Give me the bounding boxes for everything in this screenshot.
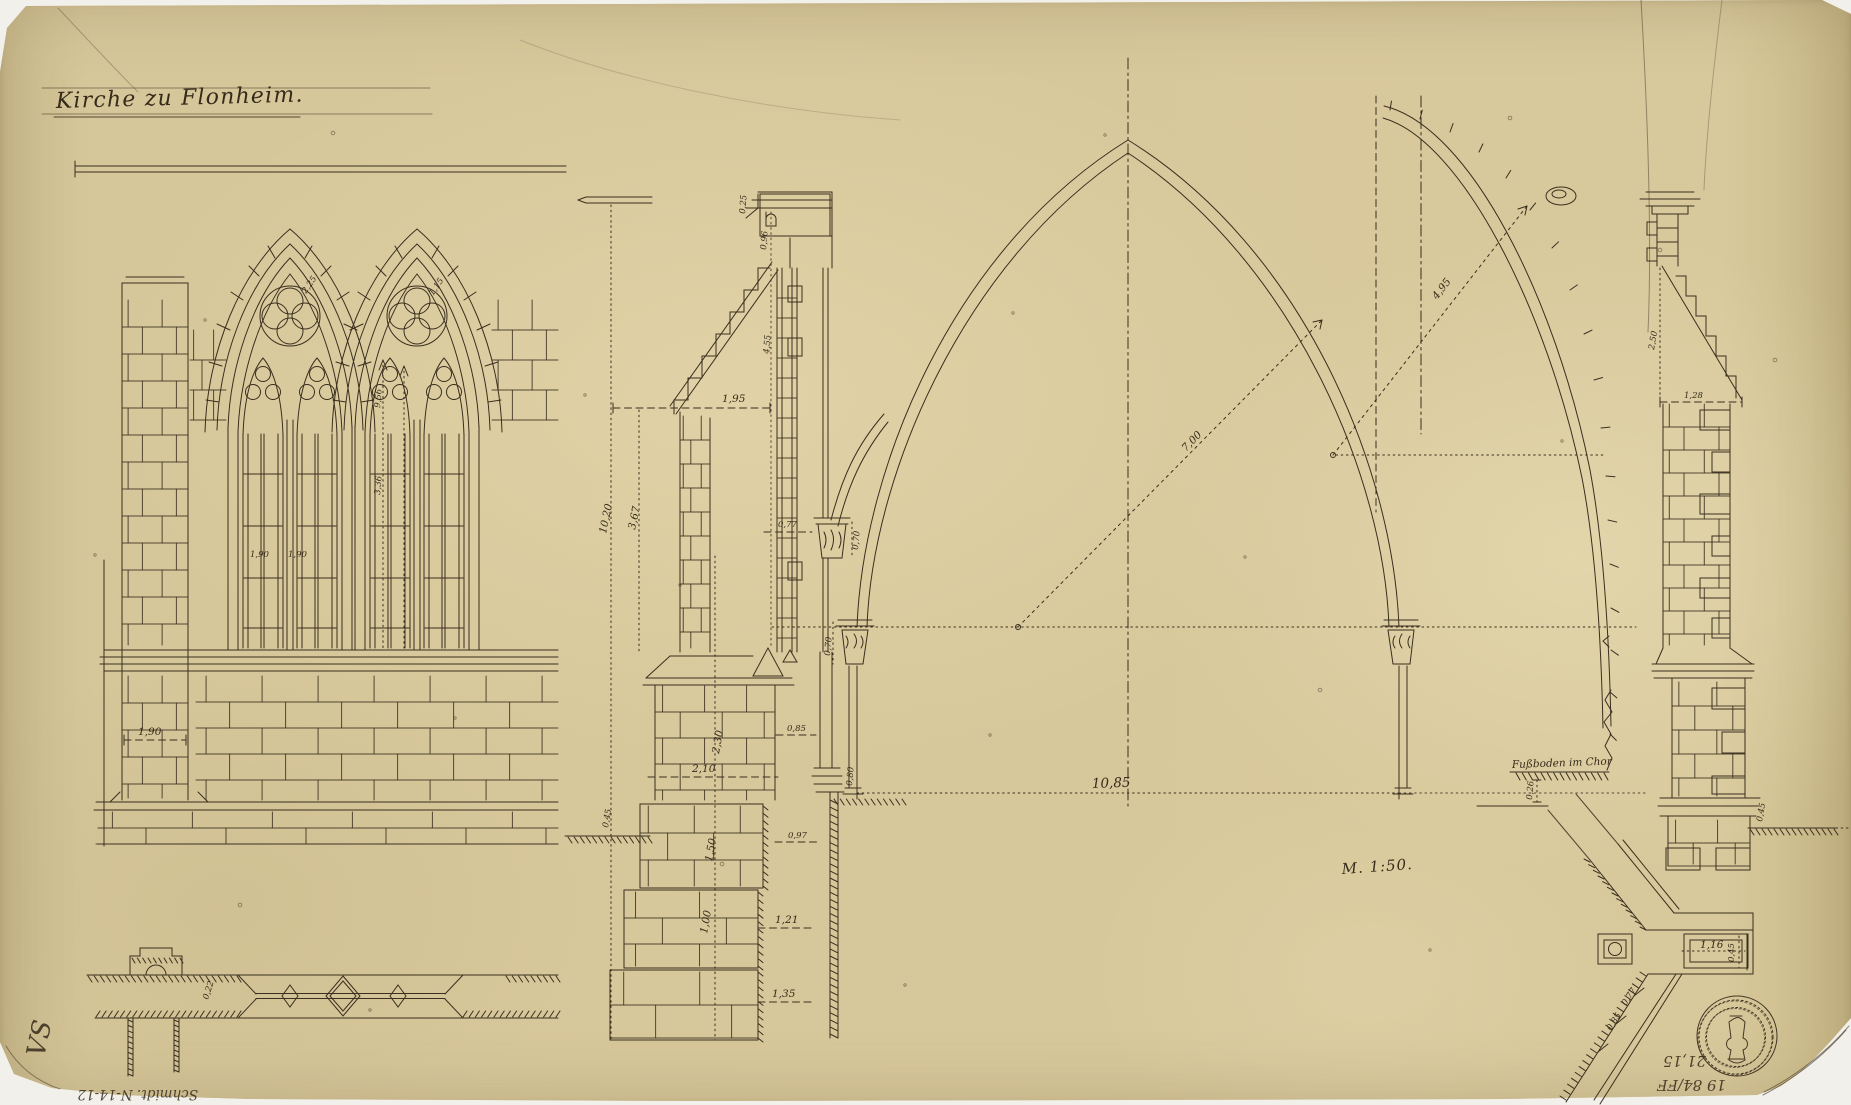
dim-mid-width: 2,10 — [691, 763, 716, 775]
earth-hatch — [830, 977, 838, 981]
earth-hatch — [830, 892, 838, 896]
hatch-tick — [174, 1035, 179, 1037]
ground-hatch — [840, 799, 844, 805]
earth-hatch — [830, 899, 838, 903]
hatch-tick — [763, 850, 768, 854]
dim-plinth-height: 0,80 — [845, 766, 857, 786]
dim-footing-height: 1,00 — [698, 909, 714, 934]
hatch-tick — [125, 976, 129, 982]
hatch-tick — [182, 1011, 186, 1017]
generated-masonry — [88, 101, 1838, 1100]
hatch-tick — [550, 1011, 554, 1017]
hatch-tick — [500, 1011, 504, 1017]
wall-cross-section: 1,95 0,25 0,96 4,55 10,20 3,67 0,77 0,70… — [565, 192, 888, 1040]
wall-hatch — [1579, 1066, 1585, 1070]
ground-hatch — [642, 837, 646, 843]
hatch-tick — [758, 907, 763, 911]
hatch-tick — [175, 976, 179, 982]
arc-hatch — [1506, 170, 1511, 178]
ground-hatch — [599, 837, 603, 843]
hatch-tick — [128, 1058, 133, 1060]
hatch-tick — [139, 1011, 143, 1017]
hatch-tick — [506, 976, 510, 982]
hatch-tick — [763, 879, 768, 883]
ground-hatch — [871, 799, 875, 805]
ground-hatch — [1804, 829, 1808, 835]
hatch-tick — [758, 892, 763, 896]
hatch-tick — [170, 1011, 174, 1017]
arc-hatch — [1611, 608, 1619, 612]
earth-hatch — [830, 949, 838, 953]
hatch-tick — [550, 976, 554, 982]
ruled-lines — [75, 161, 566, 177]
hatch-tick — [128, 1047, 133, 1049]
paper-speckle — [369, 1009, 371, 1011]
earth-hatch — [830, 1013, 838, 1017]
arc-hatch — [1584, 330, 1592, 334]
earth-hatch — [830, 807, 838, 811]
hatch-tick — [758, 914, 763, 918]
hatch-tick — [94, 976, 98, 982]
wall-hatch — [1617, 1007, 1623, 1011]
dim-cornice-lip: 0,25 — [738, 195, 750, 215]
hatch-tick — [137, 958, 140, 963]
hatch-tick — [174, 1055, 179, 1057]
hatch-tick — [145, 1011, 149, 1017]
hatch-tick — [174, 1030, 179, 1032]
dim-ground-depth: 0,45 — [601, 808, 614, 828]
ground-hatch — [1822, 829, 1826, 835]
window-elevation: 1,90 1,90 1,90 2,25 1,15 9,56 3,36 — [94, 229, 558, 846]
hatch-tick — [128, 1031, 133, 1033]
dim-window-height: 4,55 — [762, 335, 774, 356]
ground-hatch — [902, 799, 906, 805]
hatch-tick — [169, 976, 173, 982]
hatch-tick — [148, 958, 151, 963]
title-block: Kirche zu Flonheim. — [42, 83, 432, 117]
earth-hatch — [830, 835, 838, 839]
ground-hatch — [877, 799, 881, 805]
hatch-tick — [157, 1011, 161, 1017]
hatch-tick — [758, 966, 763, 970]
earth-hatch — [830, 935, 838, 939]
hatch-tick — [156, 976, 160, 982]
ground-hatch — [630, 837, 634, 843]
arc-hatch — [1552, 242, 1559, 248]
hatch-tick — [219, 1011, 223, 1017]
dim-weathering-width: 1,28 — [1684, 391, 1704, 401]
hatch-tick — [88, 976, 92, 982]
wall-hatch — [1560, 1096, 1566, 1100]
hatch-tick — [107, 976, 111, 982]
hatch-tick — [144, 976, 148, 982]
hatch-tick — [128, 1025, 133, 1027]
hatch-tick — [175, 958, 178, 963]
hatch-tick — [758, 899, 763, 903]
dim-shaft-lower: 3,36 — [373, 475, 385, 495]
hatch-tick — [758, 1016, 763, 1020]
hatch-tick — [231, 976, 235, 982]
ground-hatch — [617, 837, 621, 843]
hatch-tick — [519, 976, 523, 982]
hatch-tick — [133, 1011, 137, 1017]
sheet-title: Kirche zu Flonheim. — [55, 83, 304, 115]
hatch-tick — [206, 1011, 210, 1017]
hatch-tick — [758, 929, 763, 933]
wall-hatch — [1571, 1078, 1577, 1082]
hatch-tick — [225, 976, 229, 982]
paper-speckle — [454, 717, 456, 719]
dim-mid-height: 2,30 — [710, 729, 726, 755]
hatch-tick — [763, 828, 768, 832]
hatch-tick — [758, 1009, 763, 1013]
dim-wall-b: 0,85 — [1605, 1011, 1624, 1032]
hatch-tick — [537, 1011, 541, 1017]
hatch-tick — [463, 1011, 467, 1017]
earth-hatch — [830, 864, 838, 868]
gothic-window-right — [332, 229, 502, 650]
wall-hatch — [1568, 1084, 1574, 1088]
dim-light-left: 1,90 — [250, 550, 270, 560]
dim-total-height: 10,20 — [597, 502, 615, 534]
hatch-tick — [188, 1011, 192, 1017]
scanned-architectural-drawing: Kirche zu Flonheim. 1,90 — [0, 0, 1851, 1105]
hatch-tick — [482, 1011, 486, 1017]
ground-hatch — [1786, 829, 1790, 835]
hatch-tick — [212, 1011, 216, 1017]
earth-hatch — [830, 963, 838, 967]
earth-hatch — [830, 928, 838, 932]
ground-hatch — [648, 837, 652, 843]
earth-hatch — [830, 913, 838, 917]
hatch-tick — [758, 1038, 763, 1042]
dim-jamb-width: 0,77 — [778, 520, 798, 530]
ground-hatch — [636, 837, 640, 843]
hatch-tick — [475, 1011, 479, 1017]
paper-speckle — [1318, 688, 1322, 692]
nave-arch: 7,00 4,95 0,70 10,85 M. 1:50. — [772, 58, 1648, 878]
floor-label: Fußboden im Chor — [1511, 755, 1613, 771]
hatch-tick — [758, 922, 763, 926]
choir-corner-plan: 1,16 0,45 0,77 0,85 — [1548, 794, 1753, 1104]
gothic-window-left — [205, 229, 375, 650]
hatch-tick — [121, 1011, 125, 1017]
choir-arch-segment: Fußboden im Chor 0,26 — [1376, 96, 1613, 806]
hatch-tick — [212, 976, 216, 982]
arc-hatch — [1608, 520, 1617, 522]
hatch-tick — [763, 835, 768, 839]
ground-hatch — [1756, 829, 1760, 835]
hatch-tick — [556, 976, 560, 982]
earth-hatch — [830, 800, 838, 804]
arc-hatch — [1450, 124, 1453, 132]
arc-hatch — [1601, 427, 1610, 428]
arc-hatch — [1611, 650, 1618, 655]
ground-hatch — [1780, 829, 1784, 835]
ground-hatch — [605, 837, 609, 843]
hatch-tick — [163, 976, 167, 982]
wall-hatch — [1587, 1055, 1593, 1059]
hatch-tick — [100, 976, 104, 982]
hatch-tick — [113, 976, 117, 982]
dim-arch-capital-height: 0,70 — [823, 636, 835, 656]
earth-hatch — [830, 1027, 838, 1031]
hatch-tick — [194, 976, 198, 982]
hatch-tick — [231, 1011, 235, 1017]
hatch-tick — [174, 1065, 179, 1067]
pencil-corner-mark: VS — [22, 1017, 59, 1059]
earth-hatch — [830, 970, 838, 974]
ground-hatch — [1828, 829, 1832, 835]
hatch-tick — [200, 976, 204, 982]
ground-hatch — [853, 799, 857, 805]
earth-hatch — [830, 1020, 838, 1024]
dim-recess-depth: 0,45 — [1727, 943, 1737, 962]
paper-speckle — [1012, 312, 1014, 314]
floor-hatch — [1604, 773, 1608, 780]
drawing-linework: Kirche zu Flonheim. 1,90 — [0, 0, 1851, 1105]
ground-hatch — [1774, 829, 1778, 835]
ground-hatch — [580, 837, 584, 843]
earth-hatch — [830, 999, 838, 1003]
earth-hatch — [830, 828, 838, 832]
wall-hatch — [1583, 1061, 1589, 1065]
arc-hatch — [1479, 144, 1483, 152]
hatch-tick — [763, 813, 768, 817]
earth-hatch — [830, 921, 838, 925]
hatch-tick — [128, 1036, 133, 1038]
earth-hatch — [830, 984, 838, 988]
ground-hatch — [586, 837, 590, 843]
hatch-tick — [174, 1060, 179, 1062]
window-plan: 0,22 — [87, 948, 558, 1076]
hatch-tick — [758, 944, 763, 948]
earth-hatch — [830, 857, 838, 861]
dim-radius-choir: 4,95 — [1429, 276, 1454, 303]
hatch-tick — [187, 976, 191, 982]
dim-floor-step: 0,26 — [1525, 780, 1537, 800]
ground-hatch — [1810, 829, 1814, 835]
dim-arch-tip-left: 2,25 — [300, 274, 320, 296]
ground-hatch — [593, 837, 597, 843]
arc-hatch — [1606, 476, 1615, 477]
dim-wall-a: 0,77 — [1620, 986, 1639, 1008]
hatch-tick — [127, 1011, 131, 1017]
hatch-tick — [763, 857, 768, 861]
ground-hatch — [890, 799, 894, 805]
hatch-tick — [763, 842, 768, 846]
embossed-seal — [1697, 996, 1777, 1076]
hatch-tick — [151, 1011, 155, 1017]
hatch-tick — [128, 1069, 133, 1071]
dim-plinth-depth: 0,45 — [1755, 802, 1768, 822]
hatch-tick — [556, 1011, 560, 1017]
wall-hatch — [1598, 1037, 1604, 1041]
earth-hatch — [830, 956, 838, 960]
hatch-tick — [174, 1040, 179, 1042]
floor-hatch — [1566, 773, 1570, 780]
hatch-tick — [128, 1074, 133, 1076]
ground-hatch — [1792, 829, 1796, 835]
hatch-tick — [176, 1011, 180, 1017]
hatch-tick — [159, 958, 162, 963]
hatch-tick — [150, 976, 154, 982]
floor-hatch — [1554, 773, 1558, 780]
paper-speckle — [204, 319, 206, 321]
hatch-tick — [525, 1011, 529, 1017]
ground-hatch — [568, 837, 572, 843]
hatch-tick — [96, 1011, 100, 1017]
arc-hatch — [1390, 101, 1391, 110]
dim-arch-span: 10,85 — [1092, 775, 1131, 792]
hatch-tick — [506, 1011, 510, 1017]
ground-hatch — [846, 799, 850, 805]
hatch-tick — [102, 1011, 106, 1017]
earth-hatch — [830, 885, 838, 889]
arc-hatch — [1610, 692, 1617, 698]
dim-frieze-height: 0,96 — [759, 230, 771, 250]
earth-hatch — [830, 878, 838, 882]
hatch-tick — [128, 1042, 133, 1044]
hatch-tick — [163, 1011, 167, 1017]
hatch-tick — [758, 951, 763, 955]
paper-speckle — [1561, 440, 1563, 442]
paper-speckle — [720, 862, 724, 866]
wall-hatch — [1564, 1090, 1570, 1094]
floor-hatch — [1535, 773, 1539, 780]
pencil-inventory-note: Schmidt. N-14-12 — [77, 1086, 198, 1102]
hatch-tick — [181, 976, 185, 982]
earth-hatch — [830, 991, 838, 995]
hatch-tick — [758, 972, 763, 976]
hatch-tick — [143, 958, 146, 963]
paper-speckle — [989, 734, 991, 736]
paper-speckle — [94, 554, 96, 556]
wall-hatch — [1594, 1043, 1600, 1047]
hatch-tick — [513, 1011, 517, 1017]
hatch-tick — [200, 1011, 204, 1017]
hatch-tick — [512, 976, 516, 982]
dim-weathering-height: 2,50 — [1647, 330, 1660, 352]
hatch-tick — [169, 958, 172, 963]
paper-speckle — [1244, 556, 1246, 558]
ground-hatch — [1798, 829, 1802, 835]
hatch-tick — [174, 1020, 179, 1022]
pencil-archive-line2: 21,15 — [1663, 1052, 1707, 1070]
hatch-tick — [128, 1020, 133, 1022]
earth-hatch — [830, 906, 838, 910]
paper-speckle — [331, 131, 335, 135]
floor-hatch — [1560, 773, 1564, 780]
paper-speckle — [584, 394, 586, 396]
arc-hatch — [1530, 203, 1536, 210]
paper-speckle — [1508, 116, 1512, 120]
hatch-tick — [531, 976, 535, 982]
wall-hatch — [1640, 972, 1646, 976]
floor-hatch — [1522, 773, 1526, 780]
hatch-tick — [132, 958, 135, 963]
wall-hatch — [1575, 1072, 1581, 1076]
hatch-tick — [164, 958, 167, 963]
ground-hatch — [611, 837, 615, 843]
earth-hatch — [830, 843, 838, 847]
floor-hatch — [1573, 773, 1577, 780]
floor-hatch — [1541, 773, 1545, 780]
hatch-tick — [544, 1011, 548, 1017]
hatch-tick — [525, 976, 529, 982]
paper-speckle — [904, 984, 906, 986]
earth-hatch — [830, 942, 838, 946]
floor-hatch — [1547, 773, 1551, 780]
hatch-tick — [131, 976, 135, 982]
hatch-tick — [758, 979, 763, 983]
hatch-tick — [194, 1011, 198, 1017]
ground-hatch — [574, 837, 578, 843]
earth-hatch — [830, 821, 838, 825]
ground-hatch — [896, 799, 900, 805]
paper-speckle — [1658, 248, 1662, 252]
paper-blemishes — [6, 0, 1849, 1095]
dim-footing-width: 1,21 — [775, 914, 798, 926]
paper-speckle — [238, 903, 242, 907]
hatch-tick — [153, 958, 156, 963]
floor-hatch — [1529, 773, 1533, 780]
earth-hatch — [830, 871, 838, 875]
hatch-tick — [174, 1070, 179, 1072]
ground-hatch — [1750, 829, 1754, 835]
hatch-tick — [138, 976, 142, 982]
dim-wall-width: 0,97 — [788, 831, 808, 841]
hatch-tick — [531, 1011, 535, 1017]
dim-recess-width: 1,16 — [1700, 939, 1724, 951]
ground-hatch — [1768, 829, 1772, 835]
ground-hatch — [623, 837, 627, 843]
pencil-archive-line1: 19 84/FF — [1657, 1076, 1726, 1094]
earth-hatch — [830, 1006, 838, 1010]
hatch-tick — [128, 1063, 133, 1065]
arc-hatch — [1570, 285, 1577, 290]
dim-foundation-width: 1,35 — [772, 988, 796, 1000]
hatch-tick — [758, 1031, 763, 1035]
hatch-tick — [128, 1052, 133, 1054]
hatch-tick — [174, 1025, 179, 1027]
ground-hatch — [1834, 829, 1838, 835]
hatch-tick — [758, 987, 763, 991]
paper-speckle — [1104, 134, 1106, 136]
hatch-tick — [488, 1011, 492, 1017]
floor-hatch — [1598, 773, 1602, 780]
scale-note: M. 1:50. — [1340, 855, 1413, 878]
earth-hatch — [830, 850, 838, 854]
paper-speckle — [1429, 949, 1431, 951]
floor-hatch — [1585, 773, 1589, 780]
earth-hatch — [830, 814, 838, 818]
dim-shaft-upper: 9,56 — [373, 388, 385, 408]
wall-hatch — [1602, 1031, 1608, 1035]
ground-hatch — [1762, 829, 1766, 835]
hatch-tick — [763, 806, 768, 810]
ground-hatch — [865, 799, 869, 805]
dim-base-height: 1,50 — [703, 837, 719, 862]
floor-hatch — [1579, 773, 1583, 780]
dim-buttress-width: 1,90 — [138, 726, 162, 738]
hatch-tick — [763, 864, 768, 868]
hatch-tick — [114, 1011, 118, 1017]
hatch-tick — [763, 821, 768, 825]
hatch-tick — [108, 1011, 112, 1017]
hatch-tick — [758, 994, 763, 998]
right-buttress-elevation: 2,50 1,28 — [1640, 192, 1851, 866]
